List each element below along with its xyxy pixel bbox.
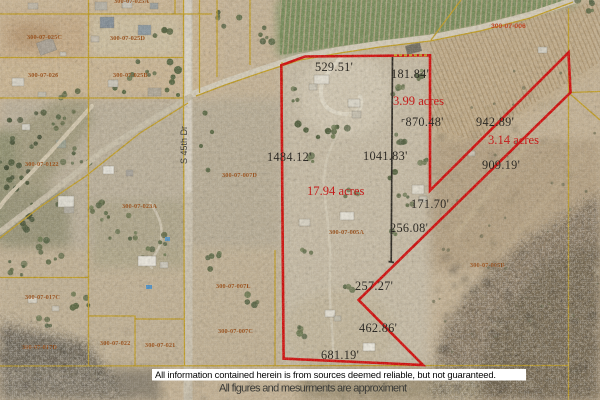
svg-text:All information contained here: All information contained herein is from… xyxy=(155,369,496,380)
svg-text:All figures and mesurments are: All figures and mesurments are approxime… xyxy=(219,383,407,395)
